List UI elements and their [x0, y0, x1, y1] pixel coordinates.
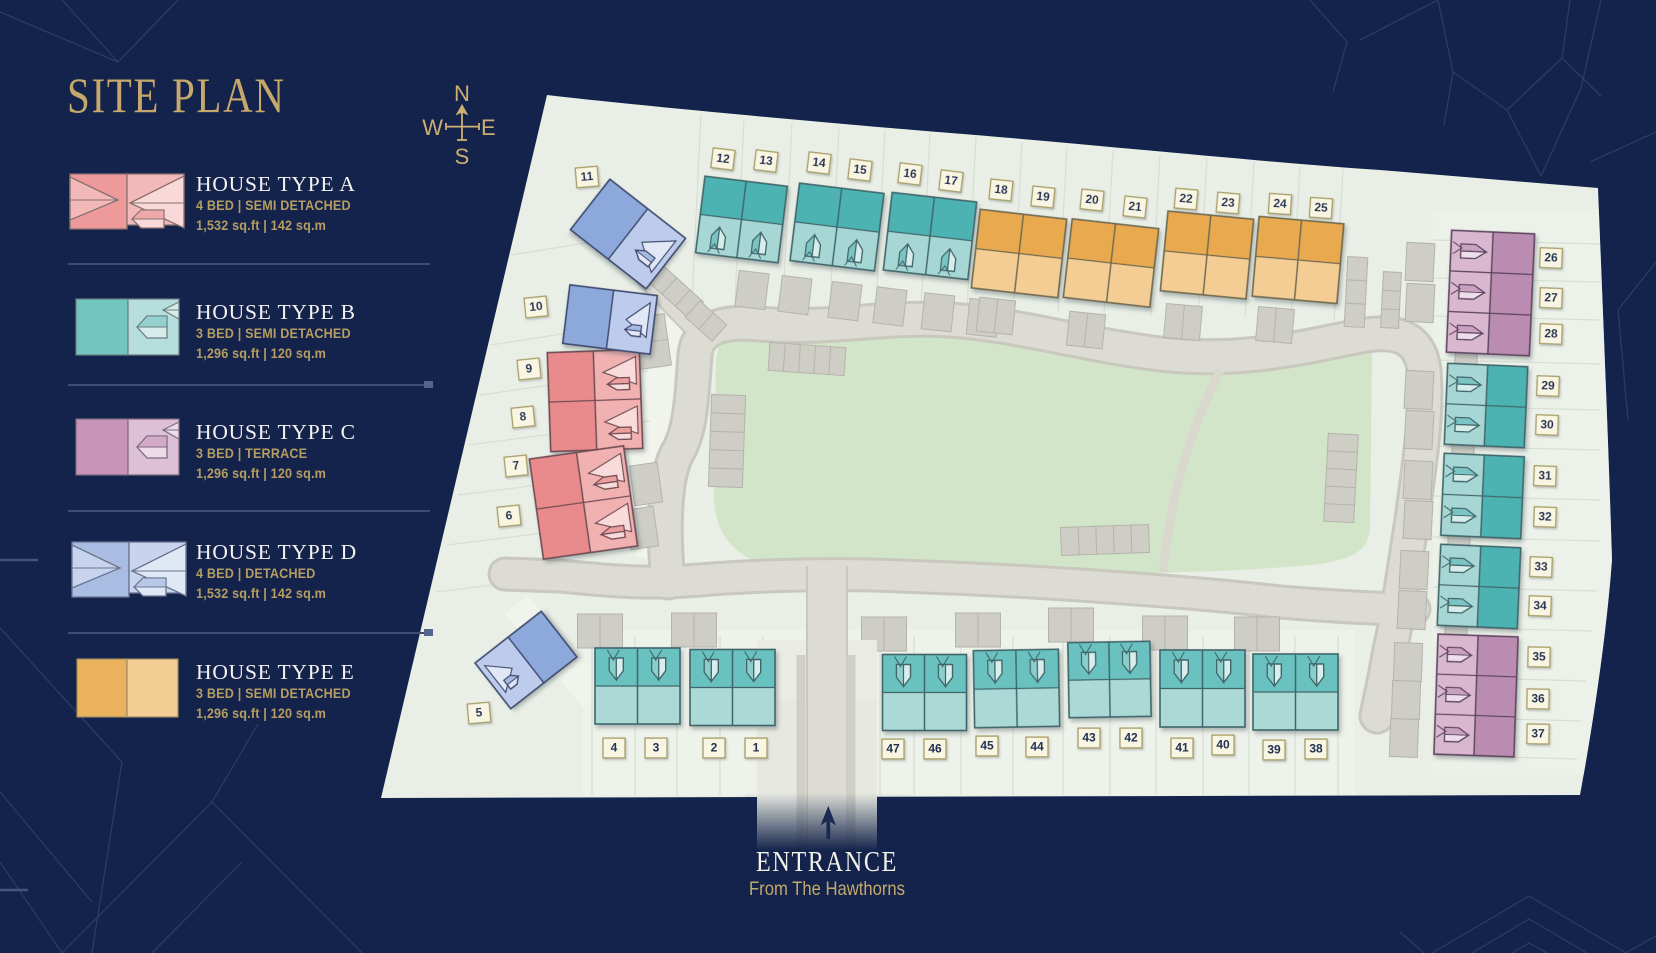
- svg-text:17: 17: [944, 173, 959, 189]
- svg-text:34: 34: [1533, 598, 1547, 612]
- svg-text:46: 46: [928, 742, 942, 756]
- svg-text:22: 22: [1179, 191, 1194, 206]
- svg-text:12: 12: [716, 151, 731, 167]
- svg-text:31: 31: [1538, 468, 1552, 482]
- svg-text:29: 29: [1541, 378, 1555, 392]
- svg-text:40: 40: [1216, 738, 1230, 752]
- svg-text:44: 44: [1030, 740, 1044, 754]
- svg-text:43: 43: [1082, 731, 1096, 745]
- svg-text:4: 4: [611, 741, 618, 755]
- svg-text:2: 2: [711, 741, 718, 755]
- svg-text:41: 41: [1175, 741, 1189, 755]
- svg-text:ENTRANCE: ENTRANCE: [756, 846, 898, 878]
- svg-text:33: 33: [1534, 559, 1548, 573]
- svg-text:15: 15: [853, 162, 868, 178]
- svg-text:42: 42: [1124, 731, 1138, 745]
- svg-text:21: 21: [1128, 199, 1143, 214]
- svg-text:28: 28: [1544, 326, 1558, 340]
- svg-text:37: 37: [1531, 727, 1545, 741]
- svg-text:18: 18: [994, 182, 1009, 197]
- svg-text:24: 24: [1273, 196, 1288, 211]
- svg-text:39: 39: [1267, 743, 1281, 757]
- svg-text:3: 3: [653, 741, 660, 755]
- svg-text:1: 1: [753, 741, 760, 755]
- svg-text:27: 27: [1544, 290, 1558, 304]
- svg-text:35: 35: [1532, 650, 1546, 664]
- svg-text:14: 14: [812, 155, 827, 171]
- svg-text:16: 16: [903, 166, 918, 182]
- svg-text:E: E: [481, 115, 496, 140]
- svg-text:S: S: [455, 144, 470, 169]
- svg-text:25: 25: [1314, 200, 1329, 215]
- svg-text:32: 32: [1538, 509, 1552, 523]
- svg-text:36: 36: [1531, 692, 1545, 706]
- svg-text:13: 13: [759, 153, 774, 169]
- svg-text:W: W: [422, 115, 443, 140]
- svg-text:23: 23: [1221, 195, 1236, 210]
- svg-text:47: 47: [886, 742, 900, 756]
- svg-text:20: 20: [1085, 192, 1100, 207]
- svg-text:N: N: [454, 81, 470, 106]
- svg-text:38: 38: [1309, 742, 1323, 756]
- svg-text:26: 26: [1544, 250, 1558, 264]
- svg-text:From The Hawthorns: From The Hawthorns: [749, 878, 905, 900]
- svg-text:10: 10: [529, 299, 544, 314]
- svg-text:11: 11: [580, 169, 594, 184]
- svg-text:30: 30: [1540, 417, 1554, 431]
- svg-text:19: 19: [1036, 189, 1051, 204]
- svg-text:45: 45: [980, 739, 994, 753]
